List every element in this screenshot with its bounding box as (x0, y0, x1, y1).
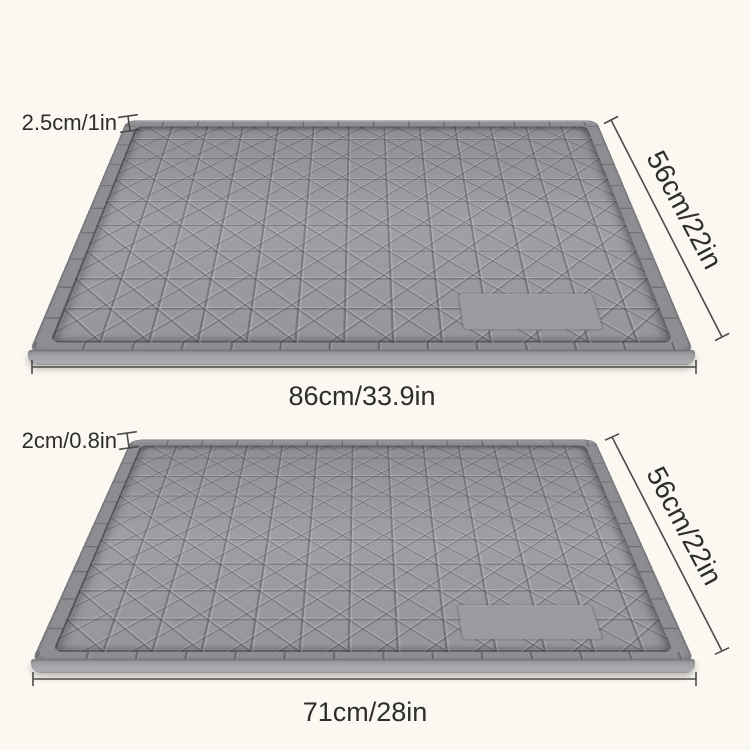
mat-large-front-wall (28, 350, 695, 365)
mat-small-textured-floor (53, 445, 674, 651)
mat-large-depth-label: 56cm/22in (641, 146, 726, 273)
mat-large-textured-floor (50, 126, 673, 342)
mat-small-depth-label: 56cm/22in (641, 462, 726, 589)
mat-small-height-label: 2cm/0.8in (0, 430, 117, 452)
mat-small-logo-patch (458, 605, 602, 639)
mat-large (28, 120, 695, 354)
mat-small-front-wall (31, 659, 695, 673)
mat-small-width-label: 71cm/28in (115, 699, 615, 726)
mat-large-width-label: 86cm/33.9in (112, 383, 612, 410)
mat-small (31, 440, 695, 664)
product-dimension-diagram: 2.5cm/1in 56cm/22in 86cm/33.9in 2cm/0.8i… (0, 0, 750, 750)
mat-large-logo-patch (459, 294, 602, 329)
width-dimension-line-small (33, 672, 696, 686)
mat-small-rim (31, 440, 695, 664)
mat-large-rim (28, 120, 695, 354)
mat-large-height-label: 2.5cm/1in (0, 112, 117, 134)
